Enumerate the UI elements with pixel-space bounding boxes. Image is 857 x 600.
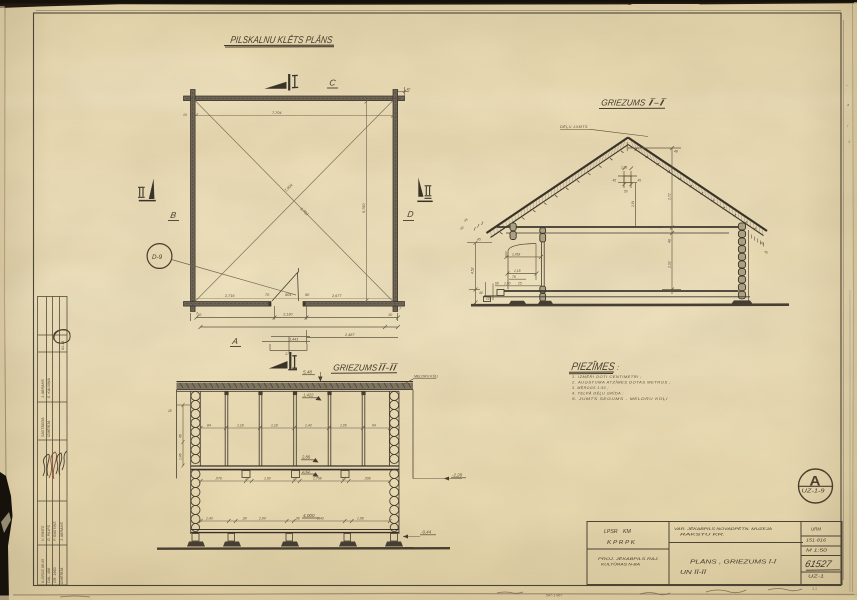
svg-text:4,52: 4,52 [471,267,475,274]
svg-text:1,130: 1,130 [283,313,293,317]
svg-text:40: 40 [407,88,411,92]
svg-text:1. IZMĒRI DOTI CENTIMETRI ;: 1. IZMĒRI DOTI CENTIMETRI ; [572,374,642,379]
svg-text:V. RIMTS: V. RIMTS [41,525,45,541]
svg-text:45: 45 [613,179,617,183]
svg-text:61527: 61527 [804,559,833,570]
svg-text:45: 45 [638,179,642,183]
svg-text:50: 50 [624,190,628,194]
svg-text:64: 64 [372,424,376,428]
svg-text:2,02: 2,02 [668,261,672,269]
svg-text:1,418: 1,418 [512,253,520,257]
svg-text:1,46: 1,46 [179,453,183,460]
svg-text:UZ-1: UZ-1 [808,574,824,579]
svg-text:1: 1 [848,139,850,144]
svg-text:IZMĒRĪJA: IZMĒRĪJA [60,567,64,584]
svg-text:2,677: 2,677 [331,294,342,298]
svg-text:UN ĪĪ-ĪĪ: UN ĪĪ-ĪĪ [680,569,708,576]
svg-text:PILSKALNU KLĒTS PLĀNS: PILSKALNU KLĒTS PLĀNS [230,35,334,46]
svg-text:IZMĒRĪJA: IZMĒRĪJA [47,420,51,437]
svg-text:E. KALNIŅA: E. KALNIŅA [47,378,51,398]
svg-text:DAĻ. 406: DAĻ. 406 [47,568,51,583]
svg-text:J. ABRAMS: J. ABRAMS [41,379,45,399]
svg-text:GRIEZUMS: GRIEZUMS [601,98,647,108]
svg-text:-2,28: -2,28 [452,473,463,478]
svg-text:KULTŪRAS N-BA: KULTŪRAS N-BA [601,563,641,567]
svg-text:48: 48 [674,150,678,154]
svg-text:UZ-1-9: UZ-1-9 [802,489,825,495]
svg-text:4,000: 4,000 [303,513,315,518]
svg-text:2,54: 2,54 [631,201,635,208]
svg-text:60: 60 [495,282,499,286]
svg-text:1,708: 1,708 [313,477,322,481]
svg-text:1,18: 1,18 [514,269,521,273]
svg-text:24: 24 [244,477,249,481]
svg-text:10: 10 [486,297,490,301]
svg-text:3,1: 3,1 [812,587,817,591]
svg-text:1,08: 1,08 [357,517,364,521]
svg-text:MELDRU KŪĻI: MELDRU KŪĻI [414,375,438,379]
svg-text:PIEZĪMES: PIEZĪMES [570,361,616,373]
svg-text:RAKSTU KR.: RAKSTU KR. [680,533,725,537]
svg-text:2,62: 2,62 [301,469,311,474]
svg-text:PROJ. JĒKABPILS RAJ.: PROJ. JĒKABPILS RAJ. [598,557,659,561]
svg-text:,076: ,076 [215,477,222,481]
svg-text:URM: URM [811,527,822,532]
svg-text:1,441: 1,441 [289,338,299,342]
svg-text:7,704: 7,704 [272,111,282,115]
svg-text:1,18: 1,18 [237,424,244,428]
svg-text:KM: KM [623,529,631,535]
svg-text:3. MĒROGS 1:50 ;: 3. MĒROGS 1:50 ; [572,385,609,390]
svg-text:1,422: 1,422 [303,393,314,398]
svg-text:1,43: 1,43 [317,517,324,521]
svg-text:2. AUGSTUMA ATZĪMES DOTAS: 2. AUGSTUMA ATZĪMES DOTAS METROS ; [571,380,671,385]
svg-text:78: 78 [512,275,516,279]
svg-text:1,43: 1,43 [305,424,312,428]
svg-text:25: 25 [517,282,522,286]
svg-text:K.OROZ 08-45: K.OROZ 08-45 [41,559,45,583]
svg-text:-0,44: -0,44 [421,530,432,535]
svg-text:M 1:50: M 1:50 [806,548,828,553]
svg-text:84: 84 [207,424,211,428]
svg-text:2,04: 2,04 [258,517,266,521]
svg-text:2,487: 2,487 [344,333,355,337]
svg-text:5. JUMTS SEGUMS - MELDRU KŪ: 5. JUMTS SEGUMS - MELDRU KŪĻI [572,396,668,401]
svg-text:DĒĻU JUMTS: DĒĻU JUMTS [560,125,588,129]
svg-text:1,60: 1,60 [264,477,271,481]
svg-text:GR. 1960.: GR. 1960. [53,567,57,583]
svg-text:1,05: 1,05 [621,166,627,170]
svg-text:P. RASTIŅŠ: P. RASTIŅŠ [52,521,57,541]
svg-text:6,760: 6,760 [362,203,366,213]
svg-text:5,48: 5,48 [303,370,312,375]
svg-text:,90: ,90 [295,517,300,521]
svg-text:1,00: 1,00 [504,282,511,286]
svg-text:4. TELPĀ DĒĻU GRĪDA ;: 4. TELPĀ DĒĻU GRĪDA ; [572,391,624,396]
svg-text:2,72: 2,72 [668,193,672,201]
svg-text:24: 24 [292,477,297,481]
svg-text:61-15: 61-15 [61,341,65,350]
svg-text:46: 46 [179,434,183,438]
svg-text:,096: ,096 [364,477,371,481]
svg-text:40: 40 [479,291,483,295]
svg-text:1,05: 1,05 [340,424,347,428]
svg-text:J. ABRAMS: J. ABRAMS [60,522,64,542]
svg-text:48: 48 [668,239,672,243]
svg-text::: : [617,365,619,372]
svg-text:,90: ,90 [242,517,247,521]
svg-text:7: 7 [196,312,198,316]
svg-text:2,86: 2,86 [301,455,311,460]
svg-text:1,43: 1,43 [206,517,213,521]
svg-text:547-1-967: 547-1-967 [546,594,563,598]
svg-text:151-816: 151-816 [806,538,827,543]
svg-text:K P R P K: K P R P K [607,540,635,546]
svg-text:G. PILIPS: G. PILIPS [47,524,51,541]
svg-text:PLĀNS , GRIEZUMS Ī-Ī: PLĀNS , GRIEZUMS Ī-Ī [690,559,778,566]
svg-text:24: 24 [341,477,346,481]
svg-text:SASTĀDĪJA: SASTĀDĪJA [41,417,45,437]
svg-text:45: 45 [477,238,481,242]
svg-text:VAR. JĒKABPILS NOVADPĒTN. M: VAR. JĒKABPILS NOVADPĒTN. MUZEJA [674,527,773,531]
svg-text:2,716: 2,716 [224,294,235,298]
svg-text:LPSR: LPSR [604,529,618,535]
svg-text:GRIEZUMS: GRIEZUMS [333,363,379,373]
svg-text:1,18: 1,18 [271,424,278,428]
svg-text:10: 10 [183,113,187,117]
svg-text:18: 18 [168,409,172,413]
svg-text:D-9: D-9 [152,254,163,261]
